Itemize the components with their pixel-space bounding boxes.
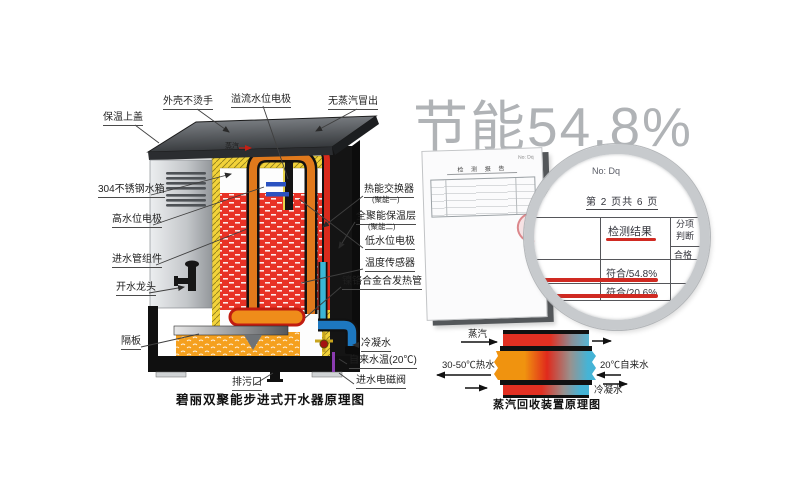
label-heating-tube: 镍铬合金合发热管 bbox=[342, 276, 422, 290]
label-tank: 304不锈钢水箱 bbox=[98, 184, 165, 198]
recovery-steam-in: 蒸汽 bbox=[468, 330, 487, 341]
recovery-tap-in: 20℃自来水 bbox=[600, 361, 649, 372]
label-shell: 外壳不烫手 bbox=[163, 96, 213, 110]
label-heat-exchanger-sub: (聚能一) bbox=[372, 196, 400, 205]
label-inlet-assembly: 进水管组件 bbox=[112, 254, 162, 268]
magnifier-ring bbox=[524, 144, 710, 330]
magnifier: No: Dq 第 2 页共 6 页 检测结果 分项 判断 合格 符合/54.8%… bbox=[524, 144, 710, 330]
doc-table-col-line bbox=[445, 180, 447, 216]
label-no-steam: 无蒸汽冒出 bbox=[328, 96, 378, 110]
label-tap-water-temp: 自来水温(20℃) bbox=[349, 355, 417, 369]
label-condensate: 冷凝水 bbox=[361, 338, 391, 352]
doc-table bbox=[430, 176, 536, 217]
doc-table-col-line bbox=[515, 178, 517, 214]
label-overflow-electrode: 溢流水位电极 bbox=[231, 94, 291, 108]
label-high-electrode: 高水位电极 bbox=[112, 214, 162, 228]
label-drain: 排污口 bbox=[232, 377, 262, 391]
heater-caption: 碧丽双聚能步进式开水器原理图 bbox=[176, 393, 365, 407]
label-tap: 开水龙头 bbox=[116, 282, 156, 296]
label-insulation-sub: (聚能二) bbox=[368, 223, 396, 232]
label-steam-inline: 蒸汽 bbox=[225, 143, 239, 151]
recovery-caption: 蒸汽回收装置原理图 bbox=[493, 399, 601, 412]
poster-page: 节能54.8% 外壳不烫手 溢流水位电极 无蒸汽冒出 保温上盖 304不锈钢水箱… bbox=[0, 0, 800, 500]
recovery-hot-out: 30-50℃热水 bbox=[442, 361, 495, 372]
label-top-cover: 保温上盖 bbox=[103, 112, 143, 126]
label-inlet-valve: 进水电磁阀 bbox=[356, 375, 406, 389]
heater-body bbox=[148, 116, 379, 382]
label-partition: 隔板 bbox=[121, 336, 141, 350]
label-temp-sensor: 温度传感器 bbox=[365, 258, 415, 272]
label-low-electrode: 低水位电极 bbox=[365, 236, 415, 250]
recovery-condensate: 冷凝水 bbox=[594, 386, 623, 397]
